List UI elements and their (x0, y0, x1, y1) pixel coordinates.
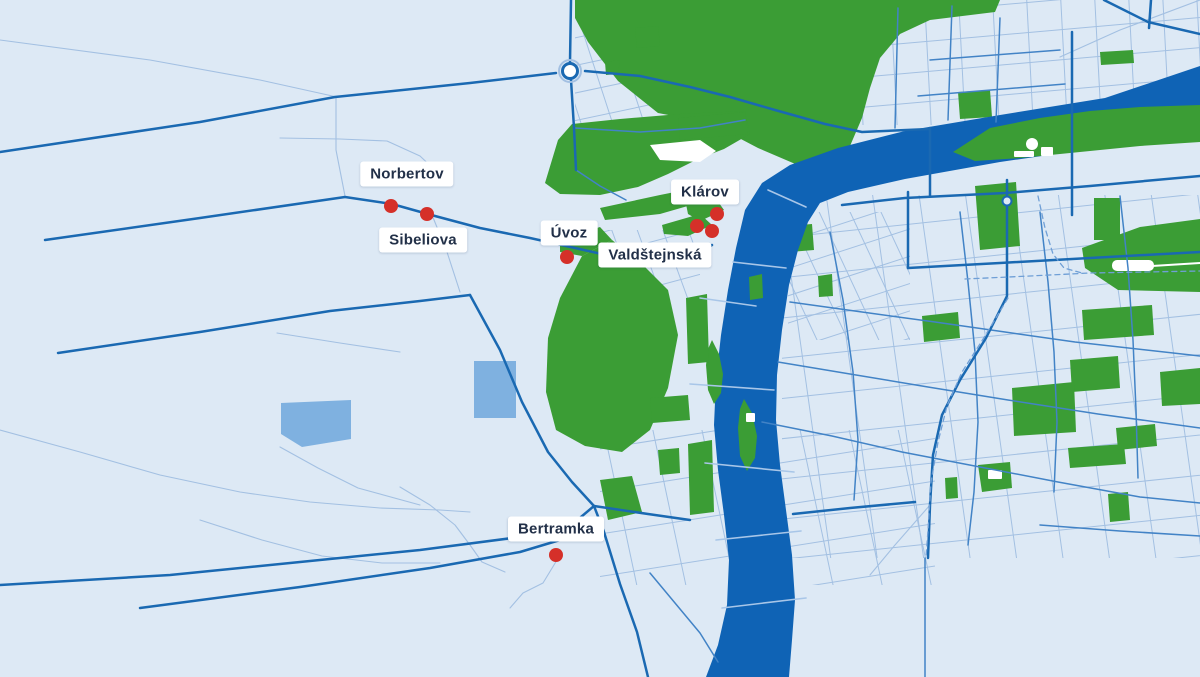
marker-valdstejnska[interactable] (690, 219, 704, 233)
marker-klarov-1[interactable] (710, 207, 724, 221)
marker-sibeliova[interactable] (420, 207, 434, 221)
place-label-sibeliova: Sibeliova (379, 228, 467, 253)
marker-klarov-2[interactable] (705, 224, 719, 238)
marker-norbertov[interactable] (384, 199, 398, 213)
place-label-norbertov: Norbertov (360, 162, 453, 187)
map-canvas[interactable]: Norbertov Sibeliova Úvoz Valdštejnská Kl… (0, 0, 1200, 677)
marker-bertramka[interactable] (549, 548, 563, 562)
map-graphics (0, 0, 1200, 677)
place-label-valdstejnska: Valdštejnská (598, 243, 711, 268)
marker-uvoz[interactable] (560, 250, 574, 264)
place-label-bertramka: Bertramka (508, 517, 604, 542)
place-label-uvoz: Úvoz (541, 221, 598, 246)
place-label-klarov: Klárov (671, 180, 739, 205)
